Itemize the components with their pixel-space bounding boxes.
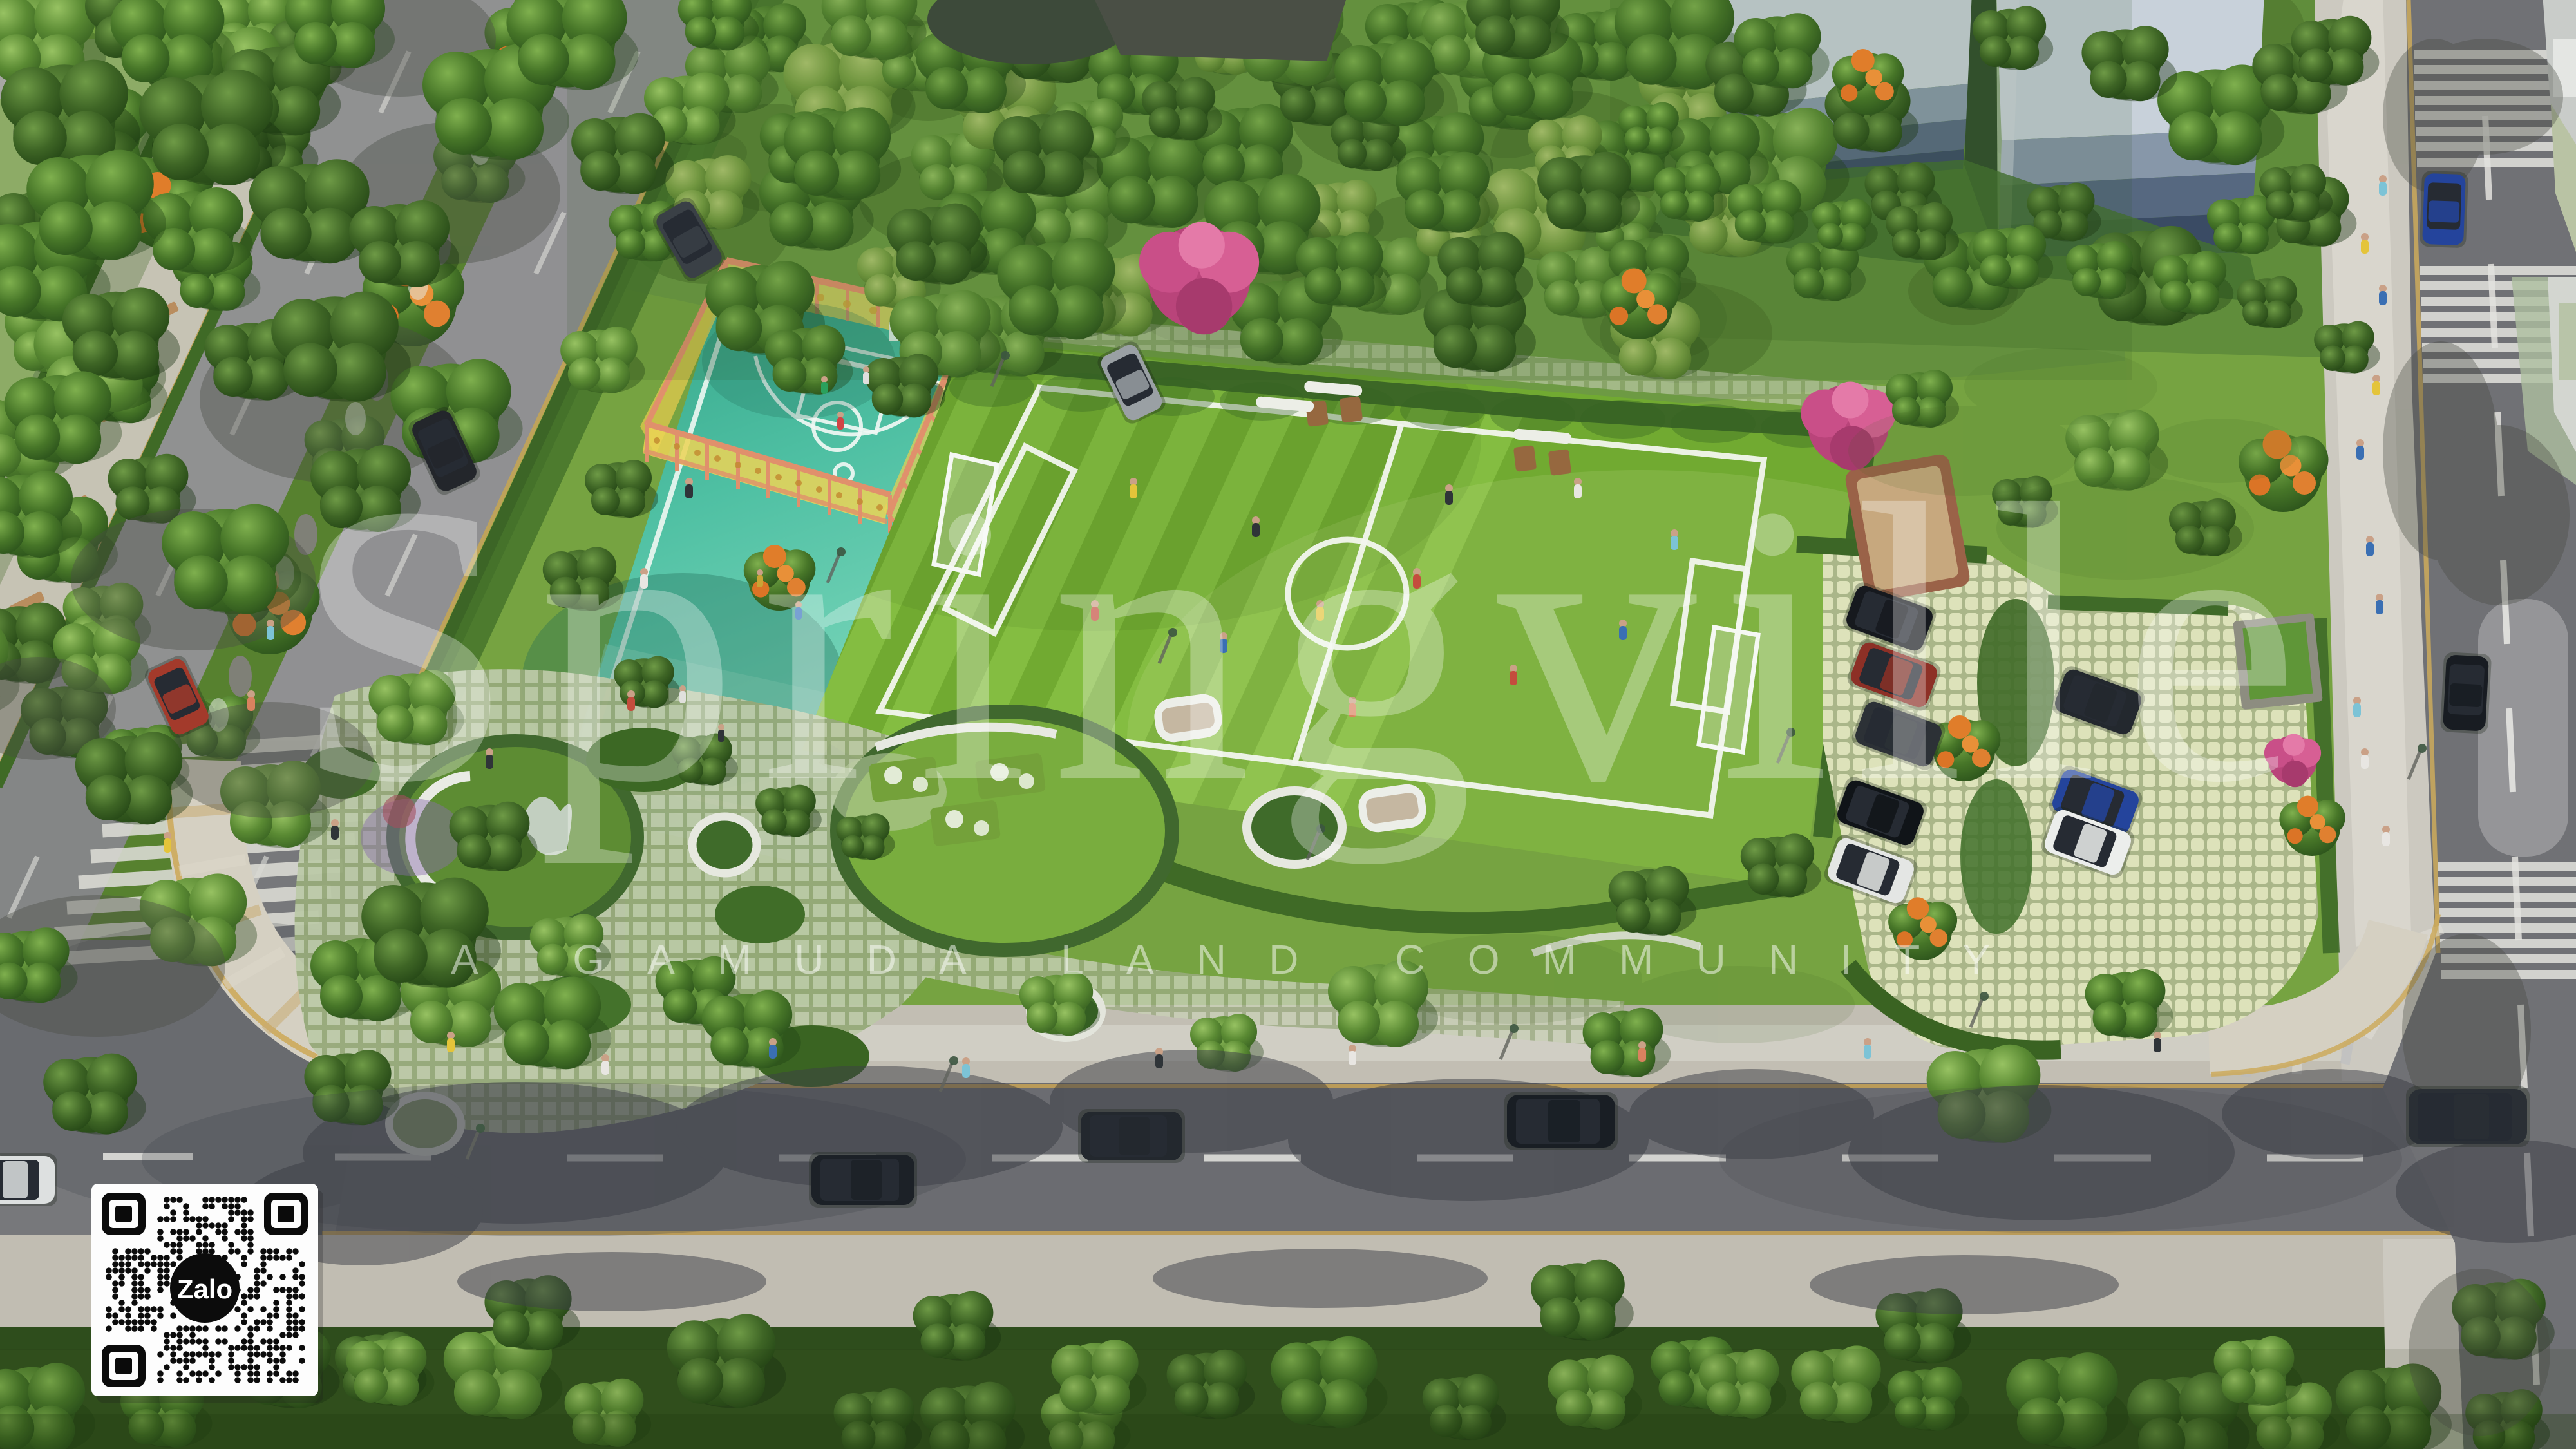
svg-text:Zalo: Zalo [177,1274,232,1304]
svg-text:Springville: Springville [293,423,2323,866]
